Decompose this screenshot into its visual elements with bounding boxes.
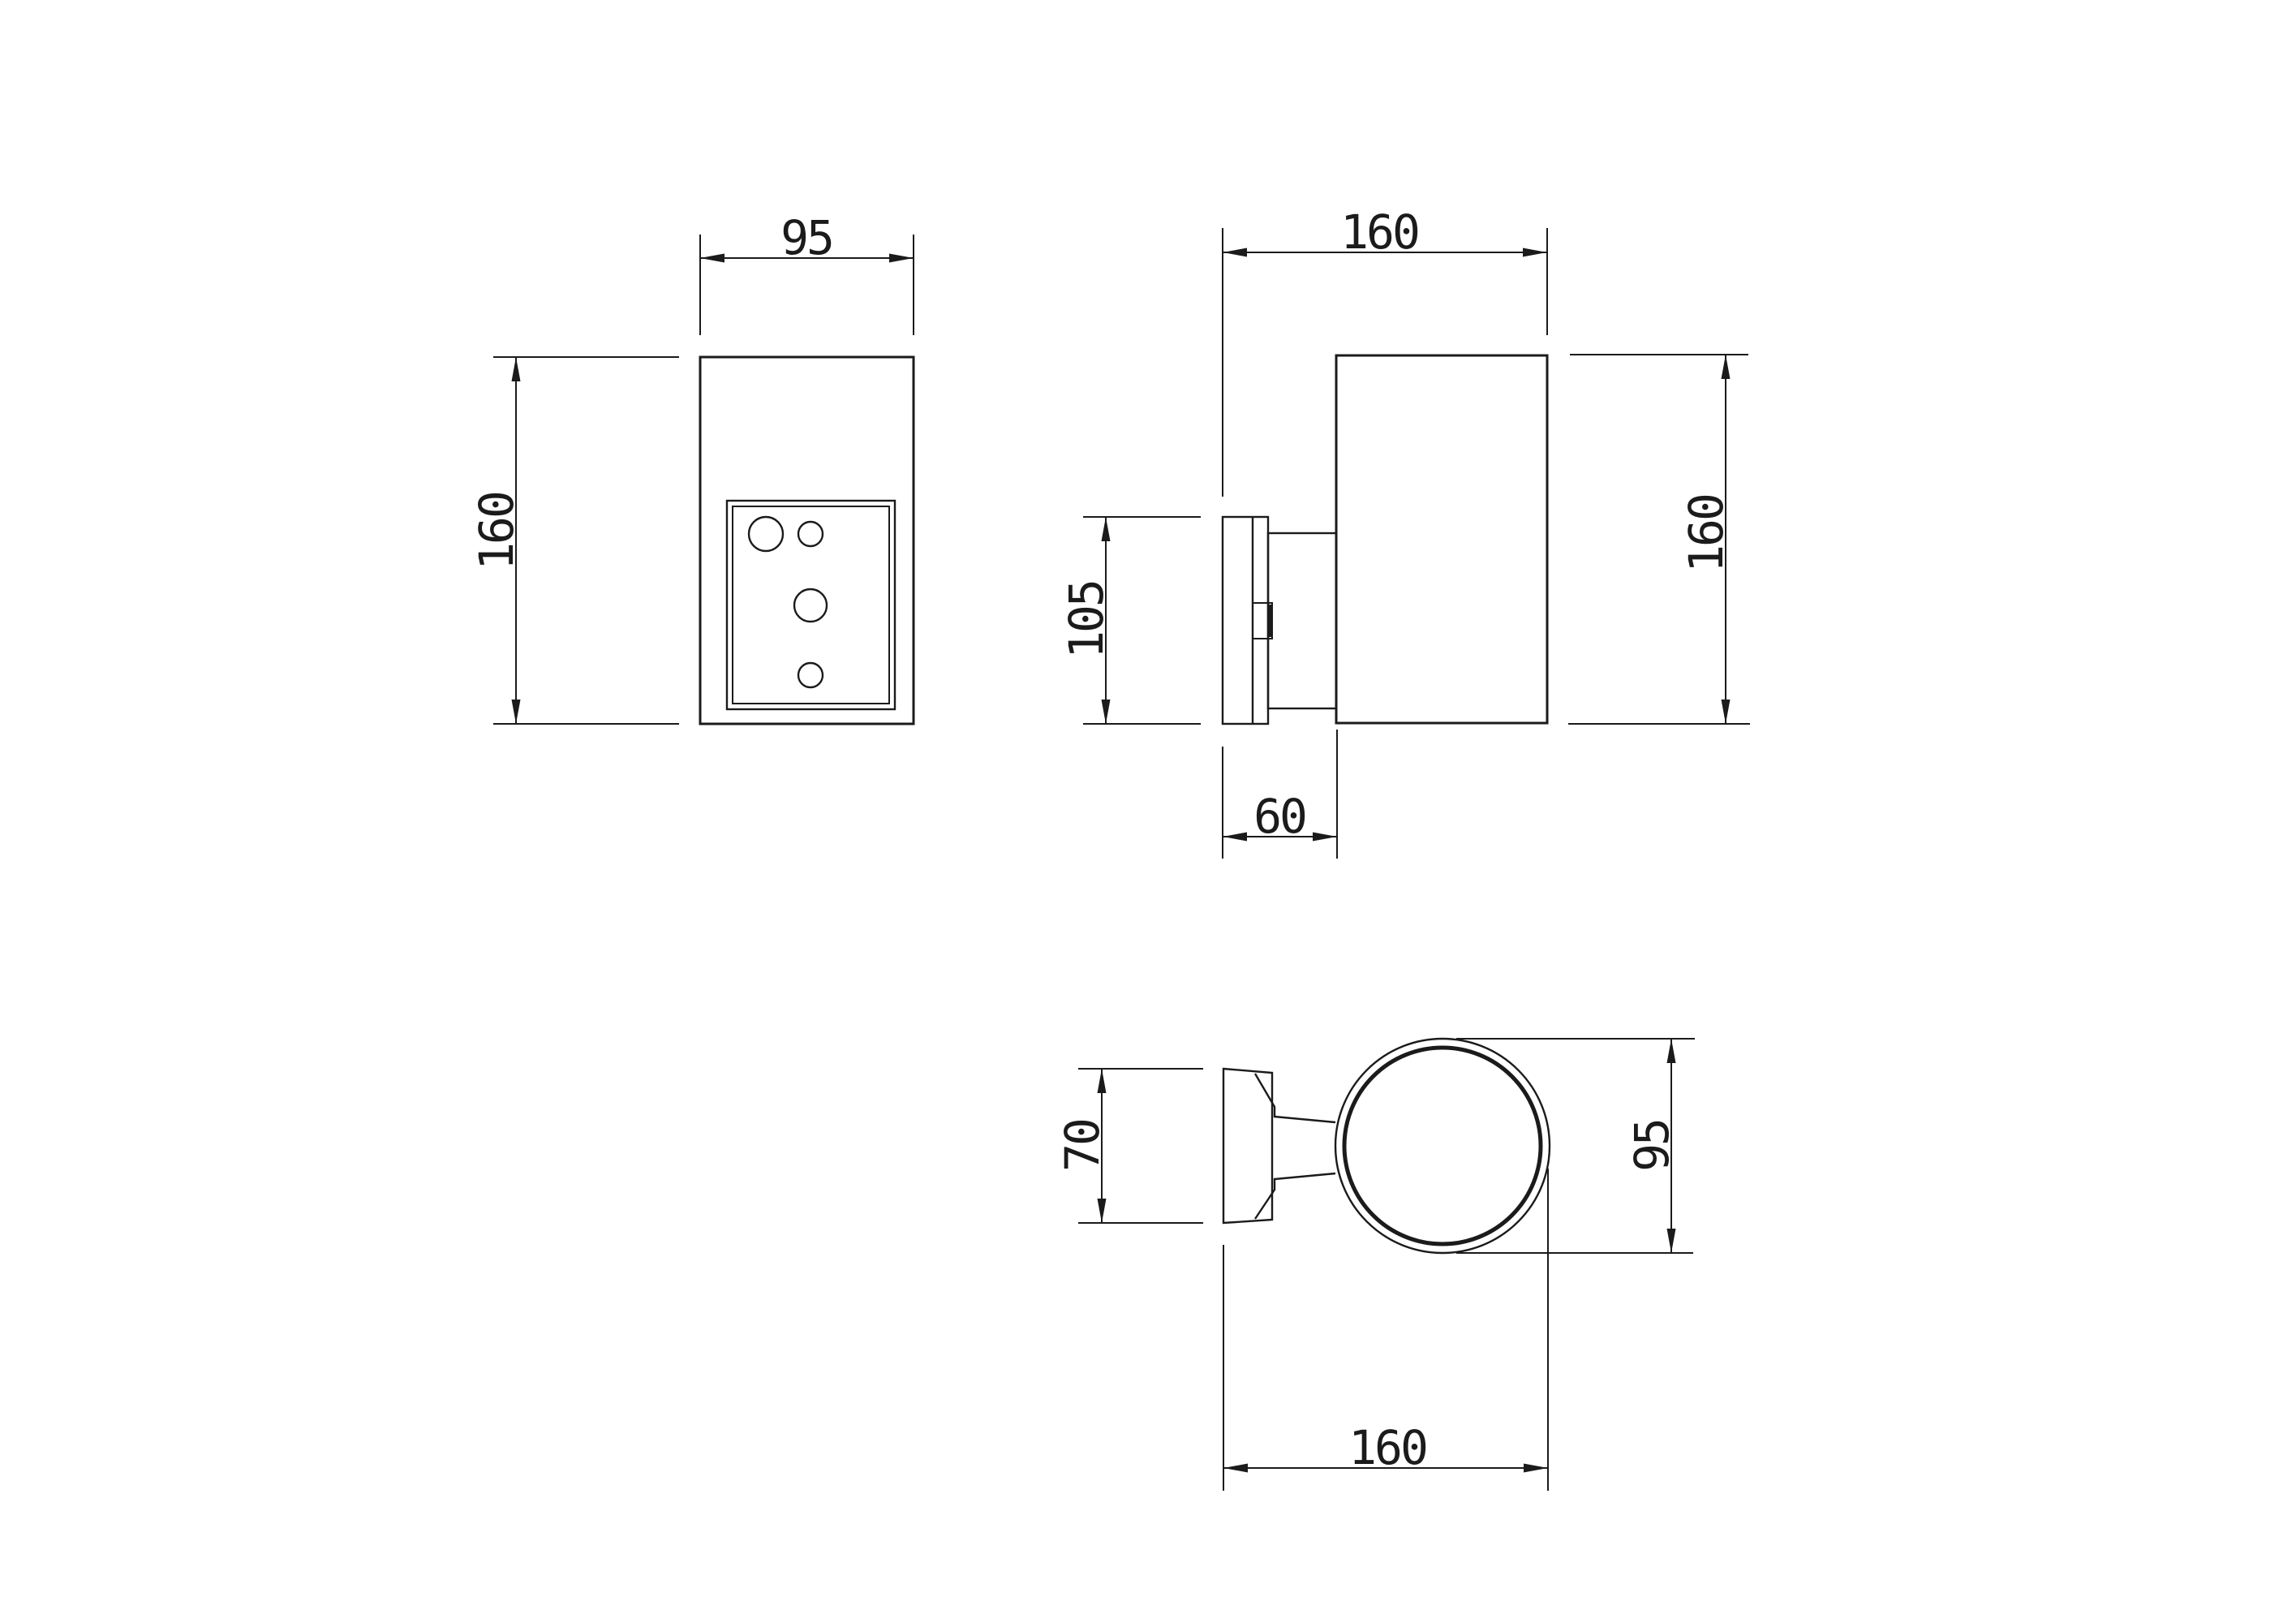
front-plate-hole-middle xyxy=(794,589,827,622)
front-plate-hole-top-right xyxy=(798,522,823,546)
arrowhead-down xyxy=(1102,700,1111,724)
side-depth-dimension: 160 xyxy=(1223,204,1547,497)
arrowhead-right xyxy=(1313,833,1337,842)
arrowhead-up xyxy=(1667,1039,1676,1063)
side-wall-plate xyxy=(1223,517,1268,724)
side-bracket-height-dimension: 105 xyxy=(1059,517,1201,724)
side-bracket-arm xyxy=(1268,533,1336,708)
top-cylinder-outer xyxy=(1335,1039,1550,1253)
front-height-label: 160 xyxy=(469,493,524,570)
top-depth-label: 160 xyxy=(1348,1420,1426,1475)
side-bracket-height-label: 105 xyxy=(1059,581,1114,659)
arrowhead-up xyxy=(1098,1069,1107,1093)
side-bracket-depth-dimension: 60 xyxy=(1223,730,1337,859)
arrowhead-left xyxy=(1223,833,1247,842)
side-view: 160 160 105 60 xyxy=(1059,204,1750,859)
technical-drawing: 95 160 160 xyxy=(0,0,2296,1623)
top-diameter-label: 95 xyxy=(1624,1120,1679,1172)
front-view: 95 160 xyxy=(469,210,914,724)
side-depth-label: 160 xyxy=(1340,204,1418,260)
arrowhead-left xyxy=(700,254,724,263)
top-bracket-neck-bottom xyxy=(1255,1173,1335,1219)
arrowhead-up xyxy=(1722,355,1731,379)
arrowhead-down xyxy=(1667,1229,1676,1253)
arrowhead-left xyxy=(1223,1464,1248,1473)
top-cylinder-inner xyxy=(1344,1048,1541,1244)
side-height-dimension: 160 xyxy=(1568,355,1750,724)
top-bracket-width-dimension: 70 xyxy=(1055,1069,1203,1223)
front-height-dimension: 160 xyxy=(469,357,679,724)
top-diameter-dimension: 95 xyxy=(1456,1039,1695,1253)
arrowhead-right xyxy=(1523,248,1547,257)
arrowhead-down xyxy=(512,700,521,724)
arrowhead-down xyxy=(1722,700,1731,724)
front-plate-hole-top-left xyxy=(749,517,783,551)
front-plate-hole-bottom xyxy=(798,663,823,687)
side-height-label: 160 xyxy=(1679,495,1734,573)
front-mount-plate-inner xyxy=(733,506,889,704)
top-bracket-neck-top xyxy=(1255,1074,1335,1122)
side-body-outline xyxy=(1336,355,1547,723)
arrowhead-right xyxy=(889,254,914,263)
top-bracket-width-label: 70 xyxy=(1055,1120,1110,1172)
arrowhead-left xyxy=(1223,248,1247,257)
top-view: 70 95 160 xyxy=(1055,1039,1695,1491)
front-width-dimension: 95 xyxy=(700,210,914,335)
arrowhead-up xyxy=(512,357,521,381)
front-mount-plate-outer xyxy=(727,501,895,709)
front-width-label: 95 xyxy=(780,210,832,265)
arrowhead-up xyxy=(1102,517,1111,541)
arrowhead-right xyxy=(1524,1464,1548,1473)
side-bracket-depth-label: 60 xyxy=(1253,789,1305,844)
arrowhead-down xyxy=(1098,1199,1107,1223)
